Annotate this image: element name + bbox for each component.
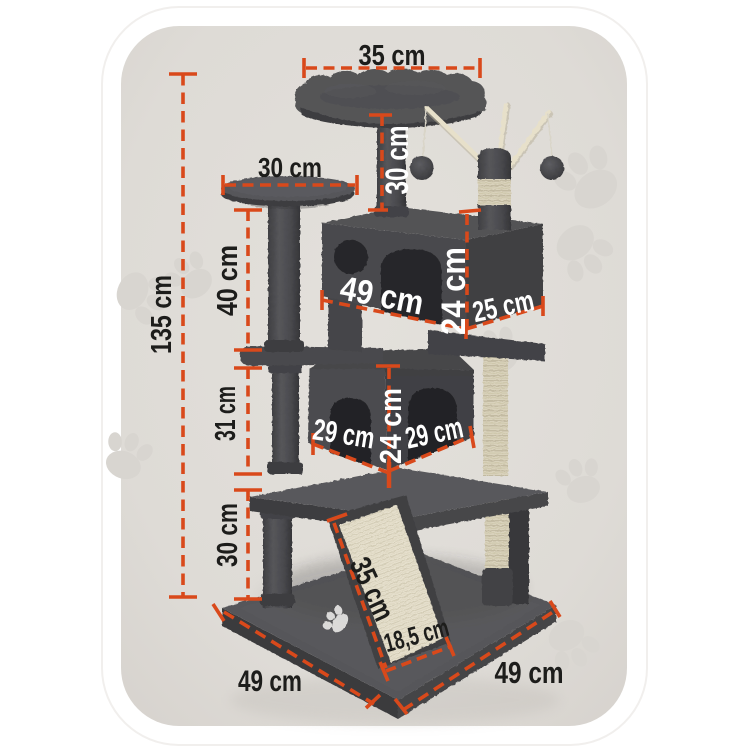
svg-text:49 cm: 49 cm — [238, 665, 302, 698]
svg-text:40 cm: 40 cm — [212, 245, 244, 316]
svg-text:30 cm: 30 cm — [379, 126, 415, 195]
svg-text:135 cm: 135 cm — [146, 275, 178, 354]
svg-text:24 cm: 24 cm — [435, 247, 473, 335]
svg-text:30 cm: 30 cm — [258, 152, 322, 183]
svg-text:49 cm: 49 cm — [495, 655, 564, 690]
svg-text:35 cm: 35 cm — [359, 40, 426, 72]
svg-text:31 cm: 31 cm — [210, 386, 242, 441]
svg-text:30 cm: 30 cm — [212, 503, 244, 567]
